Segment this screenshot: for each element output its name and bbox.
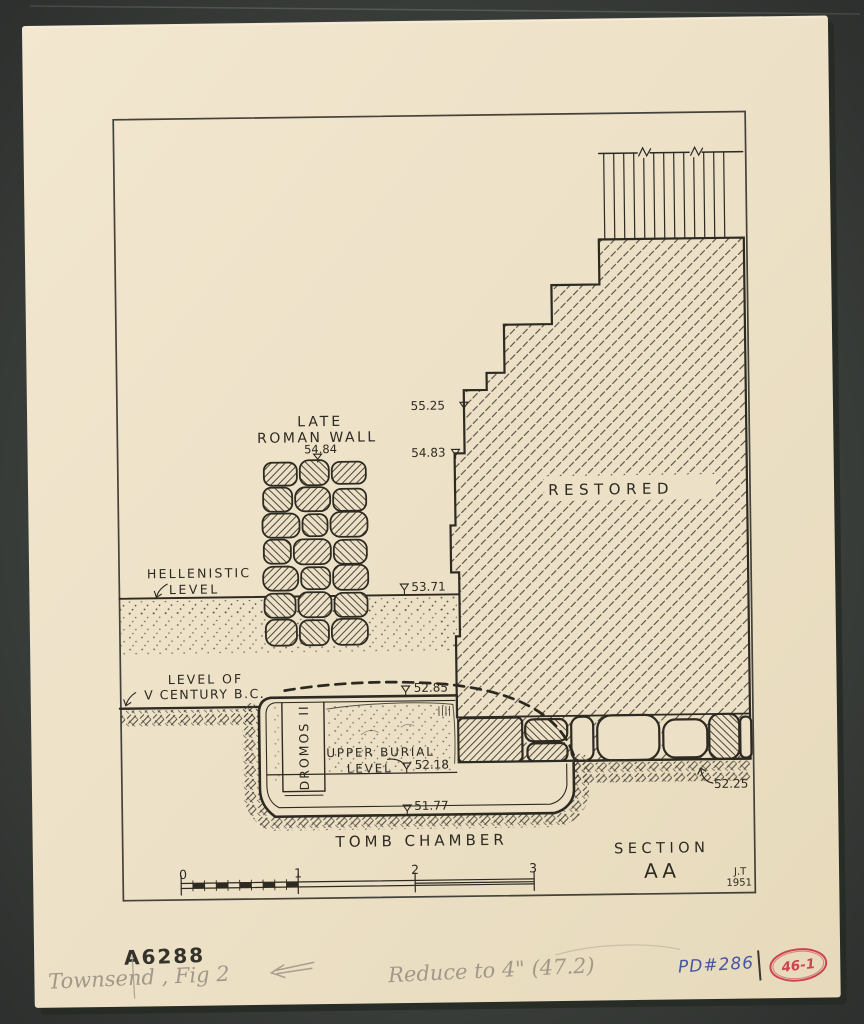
fifth-century-hatch-band	[121, 709, 261, 727]
paper-sheet: RESTORED	[22, 15, 847, 1015]
scanned-plate: RESTORED	[0, 0, 864, 1024]
elevation-52-18: 52.18	[415, 757, 450, 771]
section-label: SECTION	[614, 840, 710, 857]
dromos-label: DROMOS II	[296, 704, 312, 790]
author-initials: J.T	[733, 867, 747, 878]
wall-label-line1: LATE	[297, 414, 343, 431]
drawing-year: 1951	[726, 878, 752, 889]
elevation-52-85: 52.85	[414, 680, 449, 694]
elevation-52-25: 52.25	[714, 777, 749, 791]
elevation-53-71: 53.71	[411, 580, 446, 594]
hellenistic-line2: LEVEL	[169, 581, 220, 597]
upper-burial-line2: LEVEL	[347, 761, 393, 776]
fifth-century-line2: V CENTURY B.C.	[144, 686, 265, 703]
fifth-century-line1: LEVEL OF	[168, 671, 243, 687]
section-name: AA	[644, 858, 680, 882]
hellenistic-line1: HELLENISTIC	[147, 565, 252, 581]
archaeological-section-drawing: RESTORED	[0, 0, 864, 1024]
restored-label: RESTORED	[548, 480, 674, 500]
elevation-54-83: 54.83	[411, 445, 446, 459]
scale-3: 3	[529, 860, 537, 875]
elevation-55-25: 55.25	[411, 398, 446, 412]
edge-stipple	[439, 594, 457, 652]
wall-elevation: 54.84	[304, 442, 337, 456]
dromos-stipple	[271, 707, 281, 787]
tomb-chamber-label: TOMB CHAMBER	[334, 831, 507, 851]
upper-burial-line1: UPPER BURIAL	[326, 745, 435, 760]
scale-0: 0	[179, 867, 187, 882]
elevation-51-77: 51.77	[414, 798, 449, 812]
